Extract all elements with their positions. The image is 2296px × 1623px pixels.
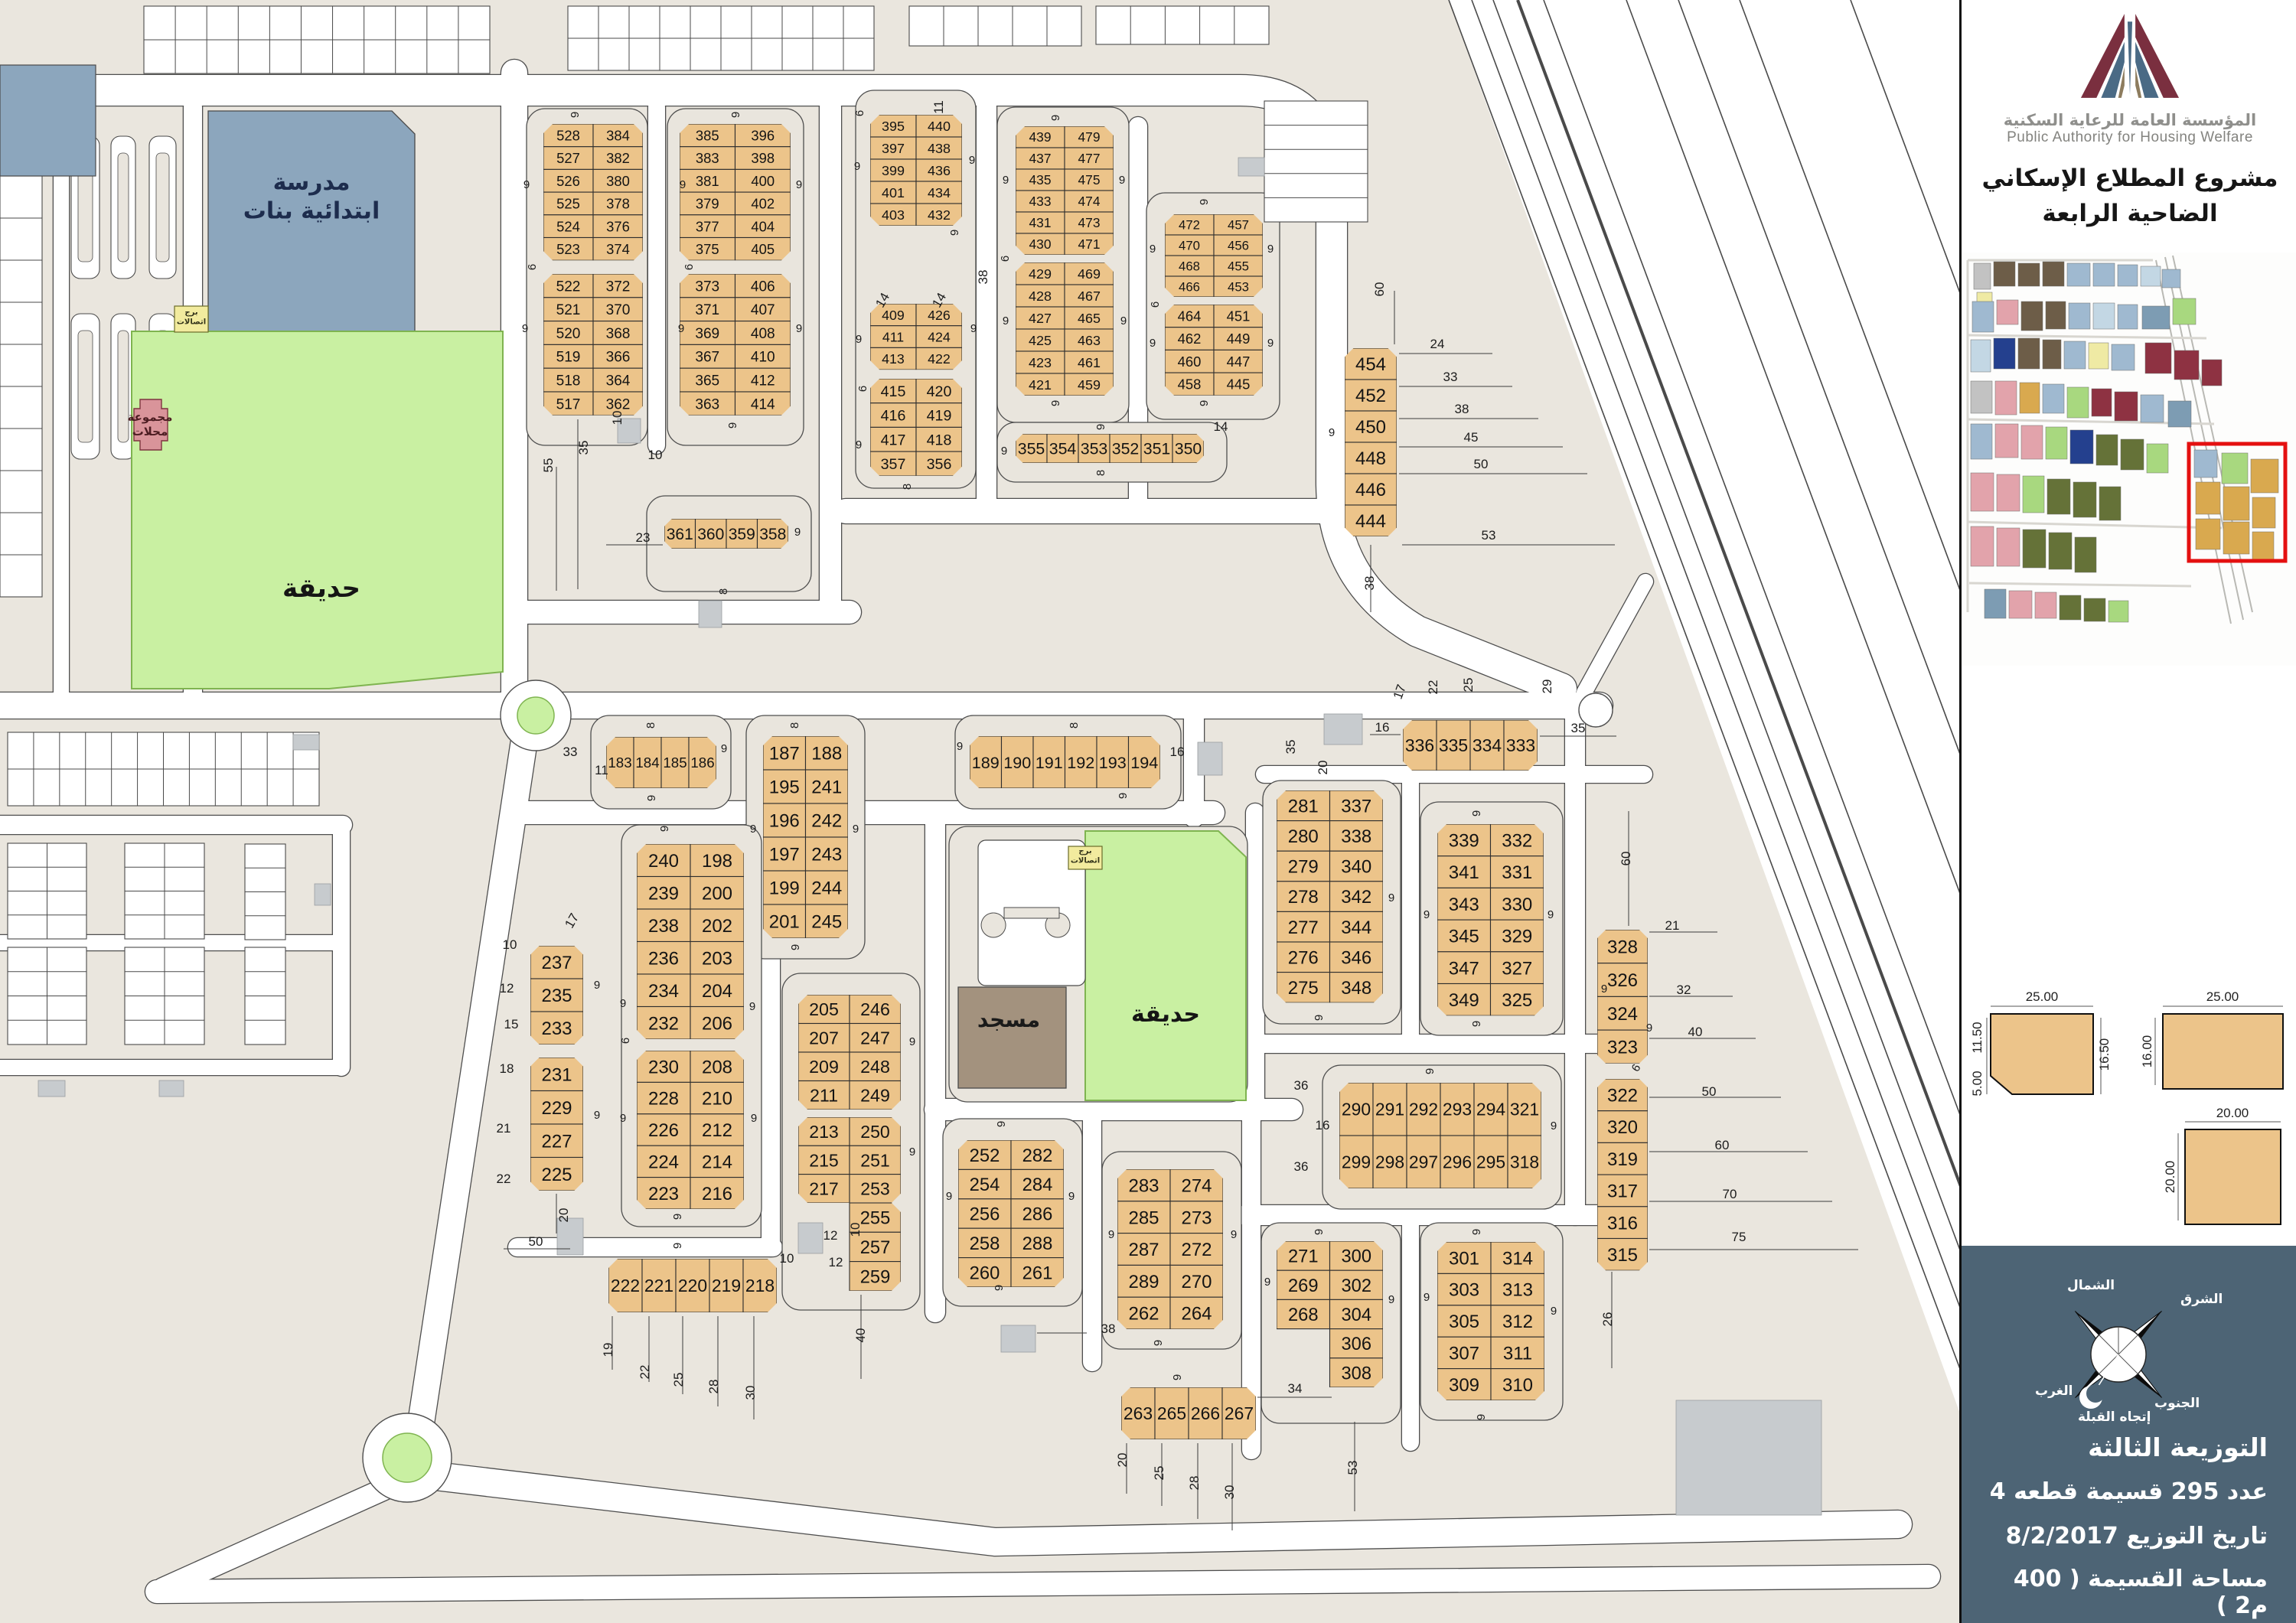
minimap-district-block <box>2141 266 2161 286</box>
plot-number: 215 <box>809 1150 839 1170</box>
dimension-label: 8 <box>644 722 657 728</box>
plot-number: 435 <box>1029 172 1052 187</box>
dimension-label: 20 <box>1115 1453 1130 1468</box>
overview-key-map[interactable] <box>1962 253 2296 666</box>
dimension-label: 9 <box>1117 793 1130 799</box>
plot-number: 464 <box>1178 308 1202 324</box>
plot-number: 289 <box>1128 1272 1159 1292</box>
plot-number: 368 <box>606 326 631 342</box>
plot-number: 233 <box>541 1018 572 1039</box>
utility-box <box>798 1223 823 1253</box>
minimap-district-block <box>2223 522 2249 554</box>
dimension-label: 9 <box>1198 400 1211 406</box>
dimension-label: 9 <box>1646 1022 1652 1035</box>
dimension-label: 10 <box>848 1223 863 1237</box>
minimap-district-block <box>2018 338 2040 369</box>
park-central[interactable] <box>1085 831 1246 1100</box>
plot-number: 292 <box>1409 1100 1438 1119</box>
site-plan-sheet: 5283845273825263805253785243765233745223… <box>0 0 2296 1623</box>
area-label: برج <box>184 308 197 317</box>
minimap-district-block <box>2023 476 2044 513</box>
plaza-connector <box>1004 908 1059 918</box>
plot-number: 312 <box>1502 1312 1533 1332</box>
plot-number: 314 <box>1502 1248 1533 1269</box>
road[interactable] <box>157 1576 1929 1592</box>
plot-number: 325 <box>1502 990 1532 1011</box>
plot-number: 220 <box>678 1276 707 1295</box>
plot-number: 460 <box>1178 354 1202 370</box>
plot-number: 440 <box>928 119 951 134</box>
plot-number: 304 <box>1342 1305 1372 1325</box>
plot-number: 469 <box>1078 266 1101 282</box>
dimension-label: 9 <box>749 1000 755 1013</box>
minimap-district-block <box>1994 262 2015 286</box>
project-title: مشروع المطلاع الإسكاني <box>1962 165 2296 192</box>
dimension-label: 12 <box>823 1228 838 1243</box>
dimension-label: 9 <box>946 1190 952 1203</box>
utility-box <box>1198 742 1222 775</box>
plot-number: 465 <box>1078 311 1101 326</box>
plot-number: 334 <box>1473 735 1502 755</box>
plot-number: 326 <box>1607 970 1638 991</box>
plot-number: 344 <box>1341 917 1371 938</box>
plot-number: 404 <box>751 218 775 234</box>
plot-number: 308 <box>1342 1364 1372 1383</box>
dimension-label: 24 <box>1430 337 1445 351</box>
dimension-label: 6 <box>999 256 1012 262</box>
master-plan-map[interactable]: 5283845273825263805253785243765233745223… <box>0 0 2296 1623</box>
plot-number: 403 <box>882 207 905 223</box>
plot-number: 296 <box>1443 1152 1472 1172</box>
plot-number: 275 <box>1288 978 1319 999</box>
plot-number: 274 <box>1181 1176 1212 1197</box>
plot-number: 218 <box>745 1276 775 1295</box>
plot-number: 323 <box>1607 1038 1638 1058</box>
dimension-label: 9 <box>1470 1021 1483 1027</box>
plot-group: 183184185186 <box>606 737 716 788</box>
plot-number: 432 <box>928 207 951 223</box>
plot-number: 303 <box>1449 1280 1479 1301</box>
minimap-district-block <box>1971 526 1994 566</box>
plot-group: 301314303313305312307311309310 <box>1437 1242 1544 1400</box>
dimension-label: 38 <box>1455 402 1469 416</box>
plot-number: 331 <box>1502 862 1532 883</box>
plot-number: 428 <box>1029 288 1052 304</box>
plot-number: 473 <box>1078 215 1101 230</box>
dimension-label: 9 <box>750 823 756 836</box>
typical-plot-shape <box>2185 1129 2281 1224</box>
dimension-label: 9 <box>522 322 528 335</box>
plot-number: 347 <box>1449 958 1479 979</box>
plot-number: 185 <box>663 754 687 771</box>
minimap-district-block <box>2121 439 2144 470</box>
dimension-label: 9 <box>1171 1374 1184 1380</box>
authority-name-english: Public Authority for Housing Welfare <box>1962 129 2296 146</box>
dimension-label: 22 <box>1426 680 1440 695</box>
plot-group: 231229227225 <box>530 1058 583 1191</box>
plot-number: 359 <box>729 526 755 543</box>
plot-number: 337 <box>1341 796 1371 816</box>
plot-number: 310 <box>1502 1375 1533 1396</box>
dimension-label: 9 <box>1548 908 1554 921</box>
plot-number: 415 <box>881 383 906 400</box>
dimension-label: 45 <box>1464 430 1479 445</box>
plot-number: 328 <box>1607 937 1638 957</box>
plot-number: 307 <box>1449 1344 1479 1364</box>
plot-number: 458 <box>1178 376 1202 393</box>
plot-number: 258 <box>970 1234 1000 1254</box>
minimap-district-block <box>2118 265 2138 286</box>
plot-group: 255257259 <box>850 1203 901 1291</box>
plot-number: 224 <box>648 1152 679 1173</box>
plot-number: 396 <box>751 127 775 143</box>
minimap-district-block <box>2093 303 2115 329</box>
plot-number: 445 <box>1227 376 1251 393</box>
plot-group: 283274285273287272289270262264 <box>1117 1169 1223 1329</box>
dimension-label: 38 <box>976 270 990 285</box>
plot-group: 339332341331343330345329347327349325 <box>1437 824 1544 1015</box>
dimension-label: 9 <box>1049 400 1062 406</box>
dimension-label: 50 <box>1702 1084 1717 1099</box>
mosque-block[interactable] <box>958 987 1066 1088</box>
plot-number: 255 <box>860 1209 891 1229</box>
plot-number: 309 <box>1449 1375 1479 1396</box>
plot-number: 345 <box>1449 927 1479 947</box>
compass-east-label: الشرق <box>2180 1292 2223 1307</box>
plot-number: 270 <box>1181 1272 1212 1292</box>
plot-number: 229 <box>541 1098 572 1119</box>
diagram-dim-label: 25.00 <box>2206 989 2239 1004</box>
minimap-district-block <box>1997 528 2020 566</box>
plot-group: 230208228210226212224214223216 <box>637 1051 744 1209</box>
plot-number: 446 <box>1355 480 1386 500</box>
dimension-label: 33 <box>563 745 578 759</box>
plot-number: 287 <box>1128 1240 1159 1260</box>
plot-number: 320 <box>1607 1117 1638 1138</box>
plot-number: 455 <box>1228 259 1249 274</box>
plot-number: 417 <box>881 432 906 448</box>
dimension-label: 8 <box>1068 722 1081 728</box>
dimension-label: 9 <box>993 1285 1006 1291</box>
plot-number: 332 <box>1502 830 1532 851</box>
minimap-district-block <box>2070 430 2093 464</box>
dimension-label: 9 <box>645 795 658 801</box>
plot-number: 305 <box>1449 1312 1479 1332</box>
plot-number: 355 <box>1018 440 1045 458</box>
diagram-dim-label: 5.00 <box>1970 1071 1985 1096</box>
plot-number: 298 <box>1375 1152 1404 1172</box>
dimension-label: 50 <box>529 1234 543 1249</box>
minimap-district-block <box>2064 341 2086 369</box>
plot-number: 254 <box>970 1175 1000 1195</box>
dimension-label: 12 <box>500 981 514 996</box>
parking-island <box>118 331 129 442</box>
dimension-label: 25 <box>1461 678 1476 693</box>
dimension-label: 9 <box>620 997 626 1010</box>
dimension-label: 9 <box>1551 1305 1557 1318</box>
plot-number: 210 <box>702 1089 732 1110</box>
plot-number: 470 <box>1179 239 1200 253</box>
plot-number: 245 <box>811 912 842 933</box>
minimap-district-block <box>2099 487 2121 520</box>
plot-number: 342 <box>1341 887 1371 908</box>
plot-group: 439479437477435475433474431473430471 <box>1016 126 1114 255</box>
minimap-district-block <box>2067 387 2089 418</box>
dimension-label: 9 <box>1470 810 1483 816</box>
plot-number: 285 <box>1128 1207 1159 1228</box>
plot-number: 407 <box>751 302 775 318</box>
dimension-label: 6 <box>683 264 696 270</box>
area-label: محلات <box>132 425 168 438</box>
plot-number: 452 <box>1355 386 1386 406</box>
plot-number: 227 <box>541 1131 572 1152</box>
plot-number: 523 <box>556 241 580 257</box>
dimension-label: 9 <box>1119 174 1125 187</box>
plot-number: 414 <box>751 396 775 412</box>
plot-number: 351 <box>1143 440 1171 458</box>
dimension-label: 21 <box>1665 918 1680 933</box>
dimension-label: 34 <box>1288 1381 1303 1396</box>
plot-number: 362 <box>606 396 631 412</box>
plot-number: 271 <box>1288 1247 1319 1267</box>
plot-group: 522372521370520368519366518364517362 <box>543 274 643 416</box>
dimension-label: 9 <box>1003 314 1009 328</box>
plot-number: 237 <box>541 953 572 973</box>
plot-number: 313 <box>1502 1280 1533 1301</box>
plot-number: 247 <box>860 1028 890 1048</box>
plot-group: 472457470456468455466453 <box>1165 214 1263 297</box>
plot-number: 230 <box>648 1057 679 1077</box>
dimension-label: 19 <box>601 1343 615 1357</box>
minimap-district-block <box>2222 453 2248 484</box>
dimension-label: 11 <box>595 763 608 777</box>
plot-area-line: مساحة القسيمة ( 400 م2 ) <box>1977 1566 2268 1619</box>
plot-group: 429469428467427465425463423461421459 <box>1016 262 1114 396</box>
compass-south-label: الجنوب <box>2154 1396 2200 1411</box>
compass-qibla-label: إتجاه القبلة <box>2078 1410 2151 1425</box>
plot-number: 319 <box>1607 1149 1638 1170</box>
plot-number: 356 <box>927 456 952 473</box>
plot-number: 410 <box>751 350 775 366</box>
plot-number: 336 <box>1405 735 1434 755</box>
plot-number: 341 <box>1449 862 1479 883</box>
plot-number: 467 <box>1078 288 1101 304</box>
plot-number: 327 <box>1502 958 1532 979</box>
minimap-district-block <box>2092 389 2112 416</box>
minimap-district-block <box>1971 340 1991 372</box>
minimap-district-block <box>2093 263 2115 286</box>
plot-number: 434 <box>928 185 951 200</box>
dimension-label: 9 <box>969 154 975 167</box>
dimension-label: 23 <box>636 530 651 545</box>
dimension-label: 9 <box>658 826 671 832</box>
plot-number: 223 <box>648 1184 679 1204</box>
minimap-district-block <box>2060 595 2081 620</box>
plot-number: 474 <box>1078 194 1101 209</box>
district-title: الضاحية الرابعة <box>1962 200 2296 227</box>
utility-box <box>1001 1325 1035 1352</box>
minimap-district-block <box>2196 482 2220 514</box>
dimension-label: 9 <box>1551 1119 1557 1133</box>
plot-number: 425 <box>1029 333 1052 348</box>
dimension-label: 6 <box>853 110 866 116</box>
minimap-district-block <box>2147 444 2168 473</box>
public-building <box>0 65 96 176</box>
minimap-district-block <box>1995 381 2017 415</box>
dimension-label: 32 <box>1677 983 1691 997</box>
diagram-dim-label: 16.50 <box>2097 1038 2112 1071</box>
plot-number: 352 <box>1112 440 1140 458</box>
dimension-label: 6 <box>1149 301 1162 308</box>
park-west[interactable] <box>132 331 503 689</box>
plot-number: 364 <box>606 373 631 389</box>
distribution-date-line: تاريخ التوزيع 8/2/2017 <box>1977 1523 2268 1550</box>
plot-number: 265 <box>1157 1403 1186 1423</box>
dimension-label: 50 <box>1474 457 1489 471</box>
plot-number: 358 <box>759 526 786 543</box>
dimension-label: 30 <box>743 1386 758 1400</box>
utility-box <box>293 735 319 750</box>
plot-number: 527 <box>556 150 580 166</box>
minimap-district-block <box>2043 262 2064 286</box>
plot-number: 253 <box>860 1179 890 1199</box>
dimension-label: 36 <box>1294 1078 1309 1093</box>
plot-number: 201 <box>769 912 800 933</box>
plot-number: 411 <box>882 329 904 344</box>
plot-number: 384 <box>606 127 630 143</box>
plot-number: 284 <box>1022 1175 1053 1195</box>
plot-number: 204 <box>702 981 732 1002</box>
plot-number: 346 <box>1341 947 1371 968</box>
plot-group: 237235233 <box>530 946 583 1045</box>
plot-number: 479 <box>1078 129 1101 145</box>
plot-number: 238 <box>648 916 679 937</box>
minimap-district-block <box>2142 306 2170 329</box>
plot-number: 295 <box>1476 1152 1505 1172</box>
dimension-label: 9 <box>1049 115 1062 121</box>
unassigned-plot-grid <box>909 6 1081 46</box>
plot-group: 395440397438399436401434403432 <box>870 115 962 226</box>
area-label: مسجد <box>977 1007 1040 1032</box>
plot-group: 409426411424413422 <box>870 304 962 370</box>
plot-number: 370 <box>606 302 631 318</box>
plot-number: 429 <box>1029 266 1052 282</box>
utility-box <box>315 884 331 905</box>
plot-number: 276 <box>1288 947 1319 968</box>
plot-number: 200 <box>702 883 732 904</box>
plot-number: 219 <box>712 1276 741 1295</box>
dimension-label: 9 <box>671 1214 684 1220</box>
plot-number: 522 <box>556 279 581 295</box>
plot-number: 348 <box>1341 978 1371 999</box>
dimension-label: 9 <box>854 160 860 173</box>
compass-north-label: الشمال <box>2067 1278 2115 1293</box>
dimension-label: 9 <box>721 742 727 755</box>
plot-number: 350 <box>1175 440 1202 458</box>
plot-dimension-diagrams: 25.0016.5011.505.0025.0016.0020.0020.00 <box>1962 970 2296 1246</box>
plot-number: 228 <box>648 1089 679 1110</box>
dimension-label: 28 <box>1187 1476 1202 1491</box>
plot-number: 290 <box>1342 1100 1371 1119</box>
dimension-label: 16 <box>1316 1118 1330 1133</box>
plot-number: 472 <box>1179 218 1200 233</box>
minimap-district-block <box>2009 591 2032 618</box>
plot-number: 206 <box>702 1013 732 1034</box>
utility-box <box>1238 158 1264 176</box>
dimension-label: 9 <box>594 1109 600 1122</box>
plot-number: 375 <box>696 241 719 257</box>
plot-group: 328326324323 <box>1597 930 1648 1064</box>
plot-number: 221 <box>644 1276 673 1295</box>
minimap-district-block <box>2168 401 2191 427</box>
plot-number: 235 <box>541 986 572 1006</box>
plot-number: 357 <box>881 456 906 473</box>
dimension-label: 9 <box>1150 337 1156 350</box>
minimap-district-block <box>2196 519 2220 549</box>
dimension-label: 9 <box>856 333 862 346</box>
dimension-label: 35 <box>1571 721 1586 735</box>
plot-number: 217 <box>809 1179 839 1199</box>
dimension-label: 38 <box>1362 576 1377 591</box>
plot-number: 322 <box>1607 1085 1638 1106</box>
dimension-label: 75 <box>1732 1230 1746 1244</box>
plot-group: 355354353352351350 <box>1016 434 1204 463</box>
minimap-district-block <box>1971 424 1992 459</box>
minimap-district-block <box>2046 301 2066 329</box>
plot-number: 242 <box>811 811 842 832</box>
plot-number: 369 <box>695 326 719 342</box>
plot-number: 444 <box>1355 511 1386 532</box>
plot-number: 349 <box>1449 990 1479 1011</box>
utility-box <box>1676 1400 1821 1515</box>
minimap-district-block <box>2118 305 2138 329</box>
dimension-label: 35 <box>576 441 591 455</box>
plot-number: 418 <box>927 432 952 448</box>
plot-number: 329 <box>1502 927 1532 947</box>
plot-number: 208 <box>702 1057 732 1077</box>
minimap-district-block <box>2202 360 2222 386</box>
utility-box <box>557 1218 583 1255</box>
dimension-label: 9 <box>796 178 802 191</box>
minimap-district-block <box>2252 497 2275 528</box>
plot-number: 192 <box>1067 753 1094 772</box>
parking-island <box>118 153 129 262</box>
plot-number: 249 <box>860 1086 890 1106</box>
plot-number: 268 <box>1288 1305 1319 1325</box>
minimap-district-block <box>2145 343 2171 373</box>
plot-number: 398 <box>751 150 775 166</box>
plot-number: 196 <box>769 811 800 832</box>
dimension-label: 10 <box>503 937 517 952</box>
plot-number: 226 <box>648 1120 679 1141</box>
typical-plot-shape <box>2163 1014 2283 1089</box>
dimension-label: 22 <box>638 1365 652 1380</box>
plot-number: 184 <box>635 754 659 771</box>
dimension-label: 9 <box>909 1146 915 1159</box>
plot-number: 406 <box>751 279 775 295</box>
plot-number: 453 <box>1228 280 1249 295</box>
plot-number: 400 <box>751 173 775 189</box>
minimap-district-block <box>1971 381 1992 413</box>
dimension-label: 9 <box>1424 1068 1437 1074</box>
minimap-district-block <box>2046 427 2067 459</box>
dimension-label: 9 <box>729 112 742 118</box>
plot-number: 186 <box>690 754 714 771</box>
dimension-label: 9 <box>794 526 801 539</box>
parking-island <box>78 331 93 442</box>
dimension-label: 9 <box>789 944 802 950</box>
plot-number: 363 <box>695 396 719 412</box>
